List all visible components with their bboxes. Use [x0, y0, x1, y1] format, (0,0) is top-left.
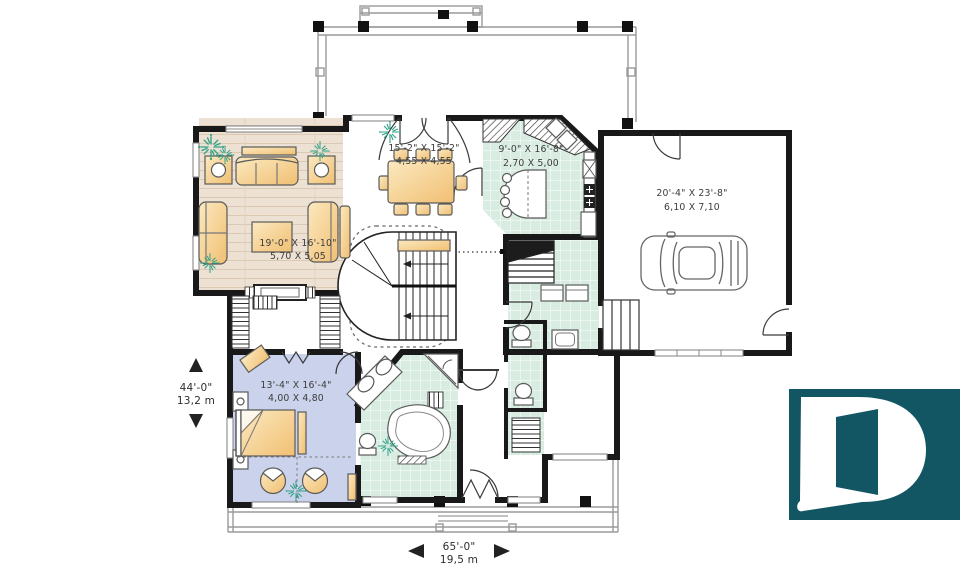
garage-dim-metric: 6,10 X 7,10	[664, 202, 720, 213]
depth-metric: 13,2 m	[177, 395, 215, 407]
bath-toilet	[359, 434, 376, 456]
bedroom-dim-imperial: 13'-4" X 16'-4"	[260, 380, 331, 391]
front-veranda	[313, 6, 636, 129]
dryer	[566, 285, 588, 301]
walk-in-closet	[232, 296, 340, 348]
brand-logo	[789, 389, 960, 520]
garage-dim-imperial: 20'-4" X 23'-8"	[656, 188, 727, 199]
floor-register	[428, 392, 443, 408]
depth-dimension-marker: 44'-0" 13,2 m	[177, 358, 215, 428]
bed	[236, 410, 295, 456]
console-table	[398, 240, 450, 251]
laundry-sink	[552, 330, 578, 349]
garage-steps	[603, 300, 639, 350]
basement-stairs	[508, 241, 554, 283]
fan-chair	[261, 468, 286, 494]
car-icon	[641, 232, 747, 294]
staircase	[338, 226, 505, 347]
dining-room-dim-metric: 4,55 X 4,55	[396, 156, 452, 167]
width-imperial: 65'-0"	[443, 541, 476, 553]
arrow-up-icon	[189, 358, 203, 372]
washer	[541, 285, 563, 301]
width-dimension-marker: 65'-0" 19,5 m	[408, 541, 510, 566]
arrow-down-icon	[189, 414, 203, 428]
arrow-right-icon	[494, 544, 510, 558]
linen-closet	[512, 418, 540, 452]
floor-plan-drawing: 15'-2" X 15'-2" 4,55 X 4,55 9'-0" X 16'-…	[0, 0, 960, 569]
living-room-dim-imperial: 19'-0" X 16'-10"	[259, 238, 336, 249]
fan-chair	[303, 468, 328, 494]
arrow-left-icon	[408, 544, 424, 558]
powder-toilet	[512, 326, 531, 348]
kitchen-dim-imperial: 9'-0" X 16'-8"	[498, 144, 563, 155]
living-room-dim-metric: 5,70 X 5,05	[270, 251, 326, 262]
garage-contents	[603, 232, 747, 350]
bedroom-dim-metric: 4,00 X 4,80	[268, 393, 324, 404]
dining-room-dim-imperial: 15'-2" X 15'-2"	[388, 143, 459, 154]
floor-plan-page: 15'-2" X 15'-2" 4,55 X 4,55 9'-0" X 16'-…	[0, 0, 960, 569]
depth-imperial: 44'-0"	[180, 382, 213, 394]
width-metric: 19,5 m	[440, 554, 478, 566]
veranda-posts	[313, 10, 633, 129]
kitchen-dim-metric: 2,70 X 5,00	[503, 158, 559, 169]
